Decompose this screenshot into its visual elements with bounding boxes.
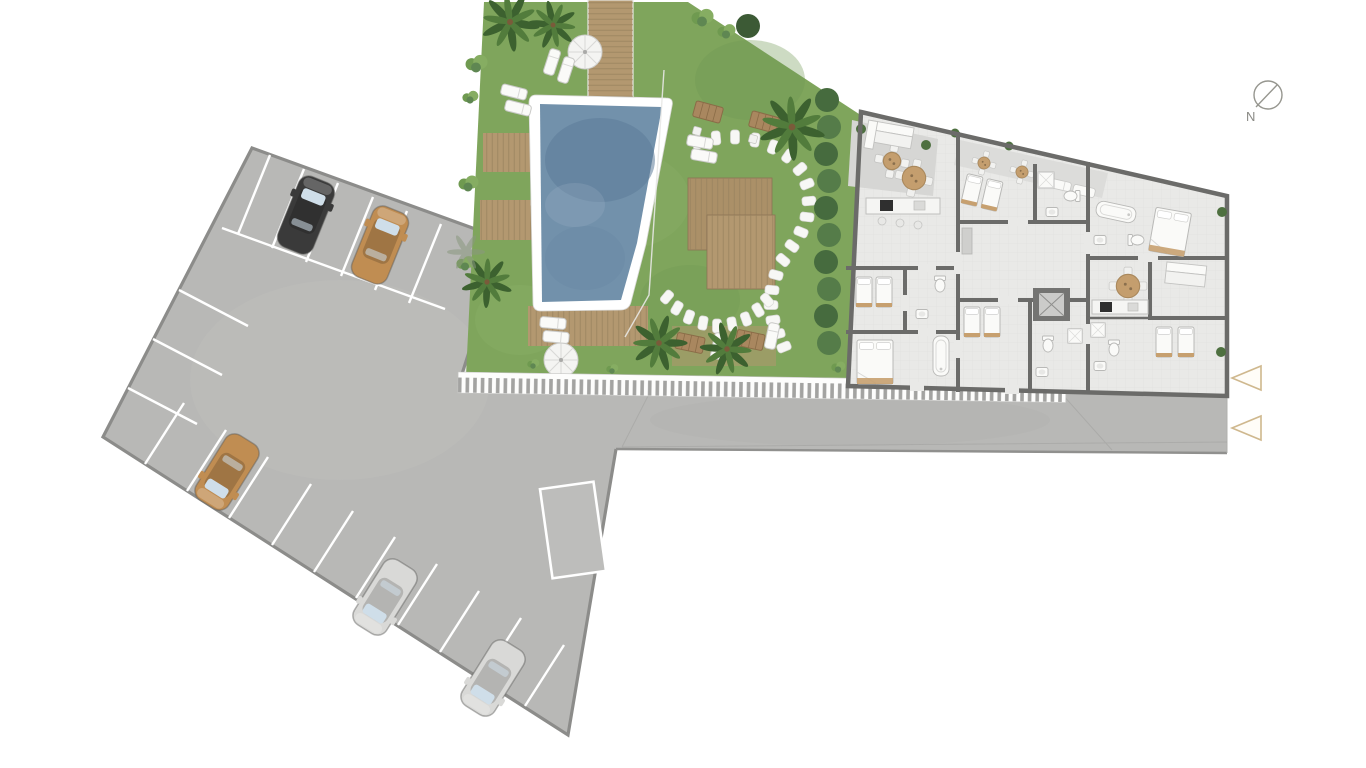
site-plan: N [0, 0, 1366, 768]
parasol-icon [544, 343, 578, 377]
bed-icon [856, 277, 872, 307]
entrance-arrow-icon [1232, 366, 1261, 390]
pool-garden [456, 0, 859, 384]
bed-icon [1156, 327, 1172, 357]
bed-icon [964, 307, 980, 337]
bed-icon [1178, 327, 1194, 357]
sink-icon [1036, 368, 1048, 377]
bathtub-icon [933, 336, 949, 376]
sink-icon [916, 310, 928, 319]
toilet-icon [1109, 340, 1120, 356]
sun-lounger-icon [540, 316, 567, 329]
sun-lounger-icon [543, 330, 570, 343]
entrance-arrows [1232, 366, 1261, 440]
sink-icon [1094, 362, 1106, 371]
kitchen [1092, 300, 1148, 314]
sink-icon [1094, 236, 1106, 245]
paved-pad [540, 482, 606, 579]
toilet-icon [935, 276, 946, 292]
toilet-icon [1128, 235, 1144, 246]
shower-icon [1038, 172, 1054, 188]
bed-icon [984, 307, 1000, 337]
wardrobe [962, 228, 972, 254]
double-bed-icon [857, 340, 893, 384]
shower-icon [1091, 323, 1105, 337]
bed-icon [876, 277, 892, 307]
apartment-building [848, 112, 1227, 396]
compass-label: N [1246, 109, 1255, 124]
site-plan-canvas: N [0, 0, 1366, 768]
north-compass-icon: N [1246, 81, 1282, 124]
toilet-icon [1043, 336, 1054, 352]
double-bed-icon [1148, 207, 1191, 257]
sofa [1165, 262, 1207, 287]
plant-icon [1217, 207, 1227, 217]
shower-icon [1068, 329, 1082, 343]
toilet-icon [1064, 191, 1080, 202]
sink-icon [1046, 208, 1058, 217]
entrance-arrow-icon [1232, 416, 1261, 440]
plant-icon [1216, 347, 1226, 357]
elevator-core [1033, 288, 1070, 321]
